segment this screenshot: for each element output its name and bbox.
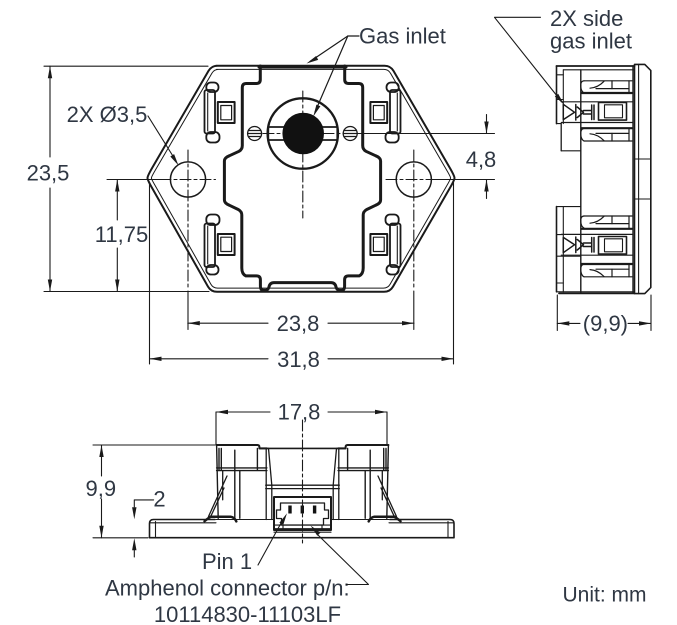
- svg-text:11,75: 11,75: [95, 222, 148, 247]
- svg-text:31,8: 31,8: [277, 347, 320, 372]
- svg-text:Unit: mm: Unit: mm: [563, 584, 647, 607]
- svg-text:23,5: 23,5: [27, 161, 70, 186]
- svg-text:2X side: 2X side: [550, 6, 623, 31]
- svg-text:17,8: 17,8: [278, 400, 321, 425]
- svg-text:10114830-11103LF: 10114830-11103LF: [154, 602, 341, 625]
- svg-text:Pin 1: Pin 1: [202, 549, 252, 574]
- svg-text:2: 2: [153, 487, 165, 512]
- svg-text:4,8: 4,8: [466, 147, 497, 172]
- svg-text:9,9: 9,9: [86, 476, 117, 501]
- svg-text:Amphenol connector p/n:: Amphenol connector p/n:: [105, 576, 350, 601]
- svg-text:23,8: 23,8: [277, 311, 320, 336]
- svg-text:Gas inlet: Gas inlet: [359, 24, 446, 49]
- svg-text:gas inlet: gas inlet: [550, 29, 632, 54]
- svg-text:(9,9): (9,9): [583, 311, 628, 336]
- svg-text:2X Ø3,5: 2X Ø3,5: [67, 102, 148, 127]
